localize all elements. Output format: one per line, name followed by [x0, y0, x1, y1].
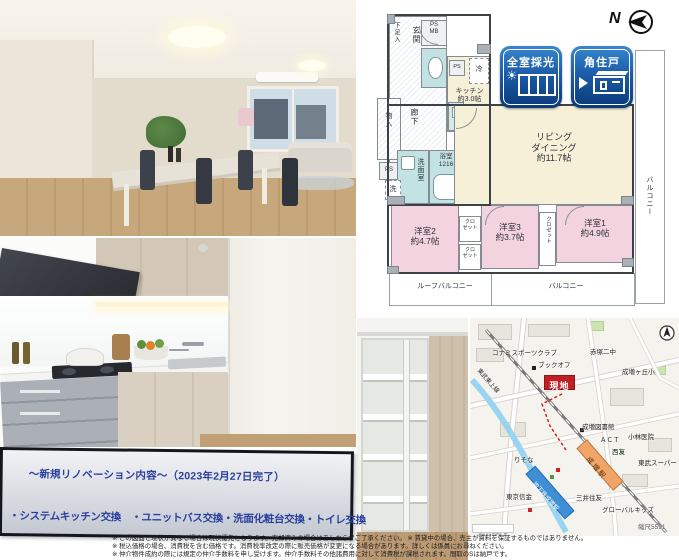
disclaimer-block: ※ この図面と現状が異なる場合は現状優先となります。売却済みの場合はあしからずご…	[112, 535, 678, 560]
dining-chair	[238, 150, 253, 190]
air-conditioner	[256, 72, 318, 82]
living-dining-photo	[0, 0, 356, 236]
renovation-title: 〜新規リノベーション内容〜（2023年2月27日完了）	[29, 466, 285, 484]
kitchen-photo	[0, 238, 356, 447]
badge-frame: 全室採光 ☀	[503, 49, 559, 105]
badge-corner-unit: 角住戸	[571, 46, 633, 108]
ps-left-label: PS	[379, 167, 399, 174]
burner	[100, 366, 114, 374]
window-bar	[537, 76, 539, 94]
poi-dot	[528, 508, 532, 512]
shelf-divider	[403, 340, 410, 530]
map-copyright-box: ©MAPPLE	[472, 524, 514, 533]
wine-bottles	[168, 146, 173, 162]
floor-sliver	[200, 434, 356, 447]
badge-label: 角住戸	[575, 54, 629, 70]
kitchen-right-wall	[228, 238, 356, 447]
shelf-unit	[361, 338, 429, 532]
floor-lamp	[238, 108, 254, 126]
corner-building-icon	[593, 76, 625, 94]
building-roof	[596, 71, 629, 75]
dining-chair	[196, 158, 212, 204]
wall-block	[387, 14, 395, 24]
map-label-akatsuka: 赤塚二中	[590, 350, 616, 357]
map-label-kobayashi: 小林医院	[628, 435, 654, 442]
map-label-act: ＡＣＴ	[600, 438, 620, 445]
shelf	[363, 414, 427, 422]
living-dining-label: リビング ダイニング 約11.7帖	[509, 132, 599, 164]
arrow-icon	[579, 77, 588, 89]
window-building	[254, 99, 288, 139]
map-label-library: 成増図書館	[582, 425, 615, 432]
map-label-scale: 縮尺5591	[638, 525, 665, 532]
badge-all-rooms-daylight: 全室採光 ☀	[500, 46, 562, 108]
table-leg	[262, 168, 267, 204]
burner	[62, 368, 76, 376]
window-bar	[528, 76, 530, 94]
lower-cabinets-steel	[0, 376, 122, 447]
vegetables	[137, 340, 146, 349]
map-compass-icon	[658, 324, 676, 342]
map-label-konami: コナミスポーツクラブ	[492, 351, 557, 358]
building-door	[600, 81, 607, 90]
map-label-risona: りそな	[514, 458, 534, 465]
roof-balcony-label: ルーフバルコニー	[397, 283, 493, 291]
north-arrow: N	[609, 6, 661, 38]
monoiri-label: 物入	[383, 112, 393, 128]
plant	[146, 116, 186, 148]
map-label-tobu-super: 東武スーパー	[638, 461, 677, 468]
under-cabinet-light	[96, 302, 228, 307]
renovation-items: ・システムキッチン交換 ・ユニットバス交換・洗面化粧台交換・トイレ交換	[9, 508, 366, 527]
site-marker: 現地	[544, 375, 575, 390]
faucet	[182, 342, 204, 346]
window-grid-icon	[518, 74, 556, 96]
map-label-seiyu: 西友	[612, 450, 625, 457]
pot	[66, 348, 104, 366]
toilet-bowl	[428, 57, 443, 79]
window-mullion	[292, 89, 294, 149]
poi-dot	[550, 475, 554, 479]
shelf	[363, 374, 427, 382]
floorplan: バルコニー ルーフバルコニー バルコニー 下足入 玄関 廊下 物入 PS MB …	[359, 0, 679, 316]
ceiling-sensor	[198, 244, 208, 252]
senmenshitsu-label: 洗面室	[415, 158, 425, 182]
map-label-narimasugaoka: 成増ヶ丘小	[622, 370, 655, 377]
site-marker-label: 現地	[549, 381, 569, 391]
compass-icon	[625, 6, 657, 38]
geta-box-label: 下足入	[392, 22, 401, 43]
bedroom-2-label: 洋室2 約4.7帖	[391, 226, 459, 246]
balcony-right-label: バルコニー	[644, 176, 654, 216]
table-leg	[124, 184, 129, 226]
sun-icon: ☀	[506, 68, 518, 84]
closet-photo	[357, 318, 468, 560]
window-building	[296, 105, 326, 139]
poi-dot	[556, 468, 560, 472]
cabinet-handle	[20, 390, 60, 393]
renovation-info-box: 〜新規リノベーション内容〜（2023年2月27日完了） ・システムキッチン交換 …	[0, 447, 354, 540]
refrigerator-label: 冷	[469, 66, 489, 74]
shelf	[363, 496, 427, 504]
wall-block	[621, 196, 634, 205]
disclaimer-line-3: ※ 仲介物件成約の際には規定の仲介手数料を申し受けます。仲介手数料その他諸費用に…	[112, 551, 511, 559]
ceiling-light	[168, 26, 226, 48]
wall-block	[387, 196, 405, 205]
closet-small-b-label: クロ ゼット	[459, 248, 481, 260]
dining-chair	[140, 150, 155, 190]
closet-vertical-label: クロゼット	[544, 216, 552, 244]
map-label-bookoff: ブックオフ	[538, 363, 571, 370]
balcony-bottom-label: バルコニー	[511, 283, 621, 291]
washer-label: 洗	[385, 186, 401, 194]
disclaimer-line-1: ※ この図面と現状が異なる場合は現状優先となります。売却済みの場合はあしからずご…	[112, 535, 587, 543]
closet-right-wall	[429, 332, 468, 538]
map-label-globalkids: グローバルキッズ	[602, 508, 654, 515]
map-label-shinkin: 東京信金	[506, 495, 532, 502]
ps-kitchen-label: PS	[449, 64, 465, 70]
badge-frame: 角住戸	[574, 49, 630, 105]
window-bar	[546, 76, 548, 94]
photo-left-wall	[0, 40, 94, 200]
vegetable-basket	[134, 346, 168, 360]
closet-track	[357, 332, 468, 336]
wall-block	[477, 44, 491, 54]
bedroom-3-label: 洋室3 約3.7帖	[481, 222, 539, 242]
closet-small-a-label: クロ ゼット	[459, 220, 481, 232]
dining-chair	[282, 158, 298, 206]
map-label-mitsui: 三井住友	[576, 496, 602, 503]
rouka-label: 廊下	[409, 108, 420, 126]
vanity-sink	[401, 156, 415, 170]
wall-block	[387, 266, 399, 274]
wine-bottles	[176, 148, 181, 162]
disclaimer-line-2: ※ 税込価格の場合、消費税を含む価格です。消費税率改定の際に販売価格が変更になる…	[112, 543, 508, 551]
north-label: N	[609, 10, 621, 28]
building-window	[612, 81, 620, 83]
flyer-canvas: バルコニー ルーフバルコニー バルコニー 下足入 玄関 廊下 物入 PS MB …	[0, 0, 679, 560]
wall-block	[622, 258, 634, 267]
area-map: 成増駅 地下鉄成増駅 現地 コナミスポーツクラブ ブックオフ 赤塚二中 成増ヶ丘…	[470, 318, 679, 536]
toilet	[421, 48, 447, 88]
poi-dot	[532, 366, 536, 370]
ceiling-light	[298, 60, 326, 71]
shelf	[363, 454, 427, 462]
oil-bottles	[12, 342, 19, 364]
cutting-board	[112, 334, 130, 360]
